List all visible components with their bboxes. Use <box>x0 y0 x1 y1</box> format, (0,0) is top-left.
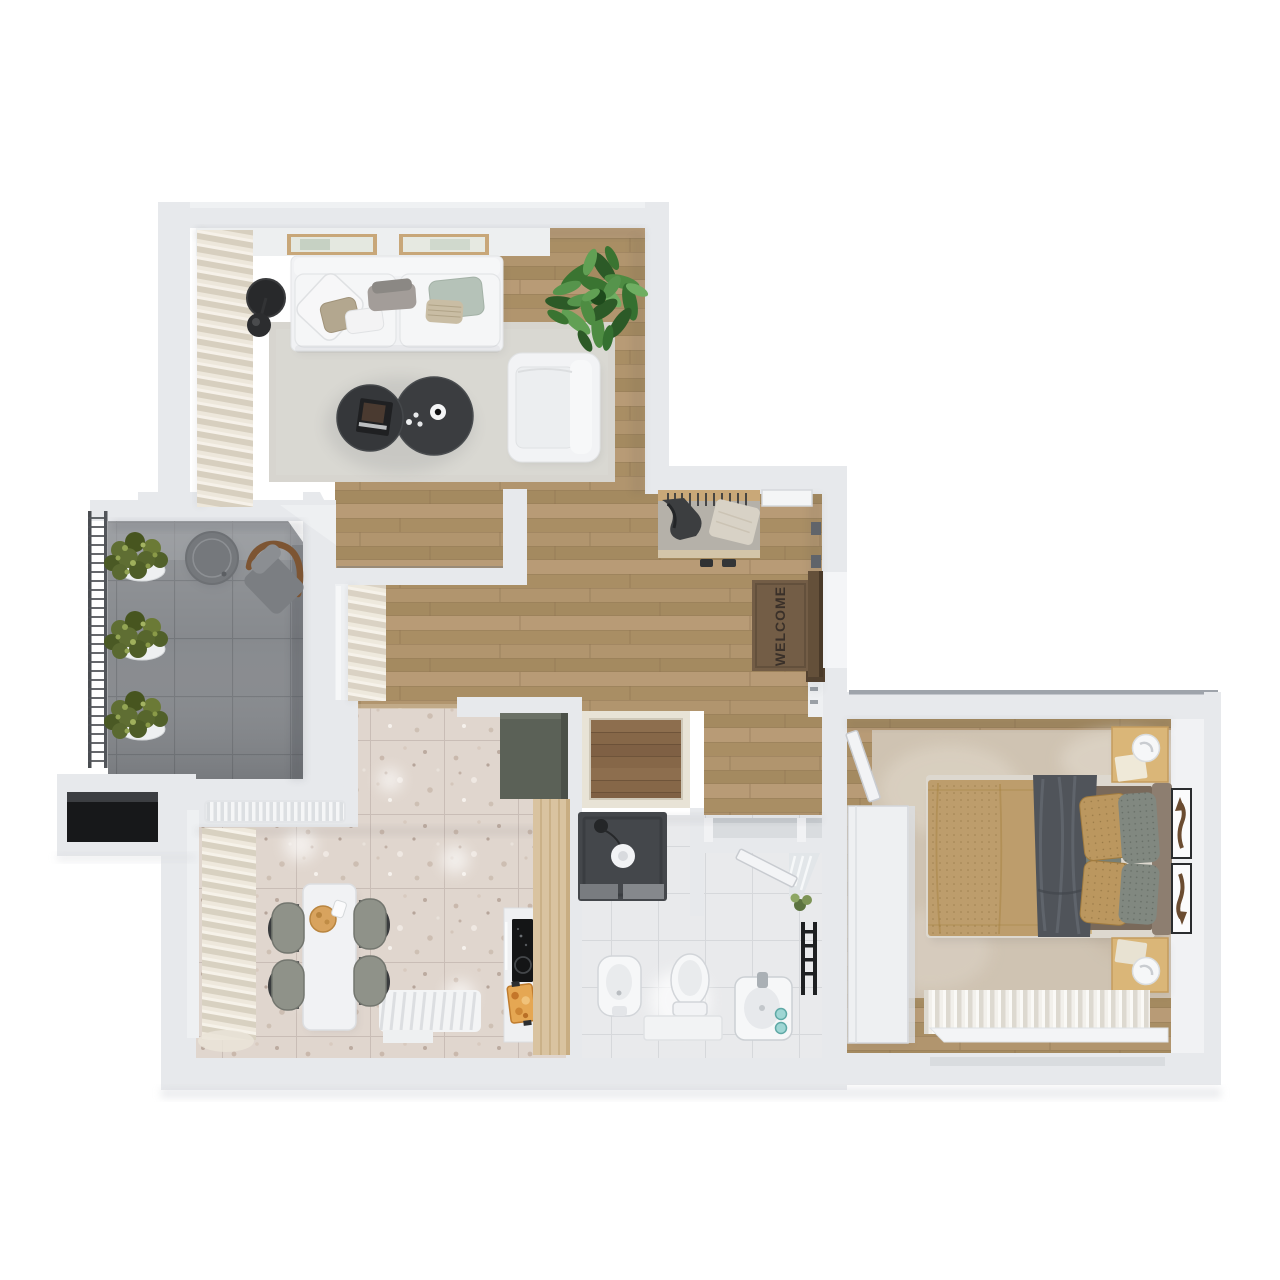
svg-text:WELCOME: WELCOME <box>772 586 788 666</box>
